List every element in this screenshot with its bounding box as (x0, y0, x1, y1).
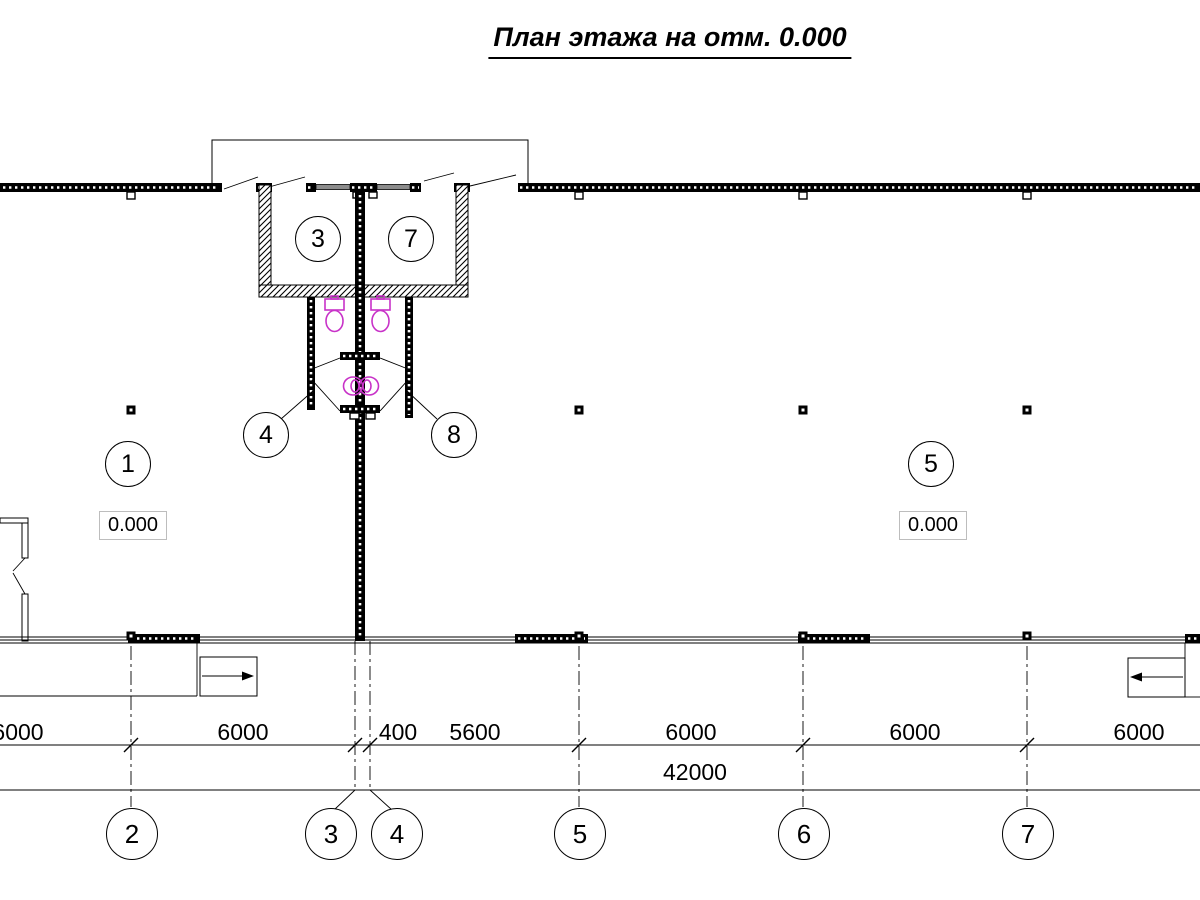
sink-icon (360, 377, 379, 395)
stair-direction-arrow (202, 672, 254, 681)
elevation-mark-left: 0.000 (99, 511, 167, 540)
axis-circle-6: 6 (778, 808, 830, 860)
axis-circle-4: 4 (371, 808, 423, 860)
dim-label-2: 400 (358, 719, 438, 746)
dim-label-6: 6000 (1099, 719, 1179, 746)
toilet-icon (371, 296, 390, 332)
axis-circle-7: 7 (1002, 808, 1054, 860)
page-title: План этажа на отм. 0.000 (488, 22, 851, 59)
dim-label-1: 6000 (203, 719, 283, 746)
dim-label-3: 5600 (435, 719, 515, 746)
right-entrance-porch (1128, 643, 1200, 697)
dim-label-5: 6000 (875, 719, 955, 746)
dim-label-4: 6000 (651, 719, 731, 746)
room-circle-8: 8 (431, 412, 477, 458)
room-circle-3: 3 (295, 216, 341, 262)
room-circle-4: 4 (243, 412, 289, 458)
left-entrance-porch (0, 643, 257, 696)
top-exterior-wall (0, 183, 1200, 199)
room-circle-5: 5 (908, 441, 954, 487)
toilet-icon (325, 296, 344, 332)
plan-linework (0, 0, 1200, 900)
room-circle-1: 1 (105, 441, 151, 487)
dim-label-0: 6000 (0, 719, 58, 746)
left-interior-partition (0, 518, 28, 641)
elevation-mark-right: 0.000 (899, 511, 967, 540)
axis-circle-5: 5 (554, 808, 606, 860)
dim-label-overall: 42000 (645, 759, 745, 786)
dimension-lines (0, 738, 1200, 790)
stair-direction-arrow (1130, 673, 1183, 682)
entrance-canopy (212, 140, 528, 184)
axis-circle-2: 2 (106, 808, 158, 860)
room-circle-7: 7 (388, 216, 434, 262)
bottom-exterior-wall (0, 634, 1200, 643)
floor-plan-canvas: План этажа на отм. 0.000 3 7 4 8 1 5 0.0… (0, 0, 1200, 900)
axis-circle-3: 3 (305, 808, 357, 860)
